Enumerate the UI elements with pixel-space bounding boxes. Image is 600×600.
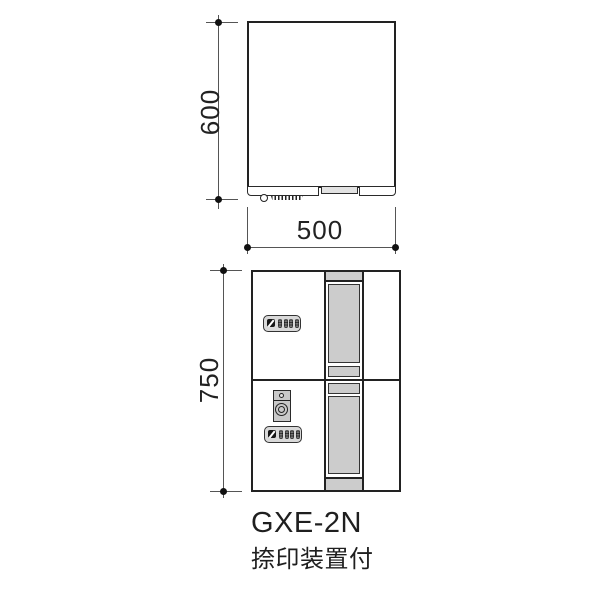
variant-label: 捺印装置付 — [251, 539, 374, 574]
caption: GXE-2N 捺印装置付 — [0, 0, 600, 600]
model-name: GXE-2N — [251, 507, 362, 540]
product-dimension-diagram: 600 500 — [0, 0, 600, 600]
